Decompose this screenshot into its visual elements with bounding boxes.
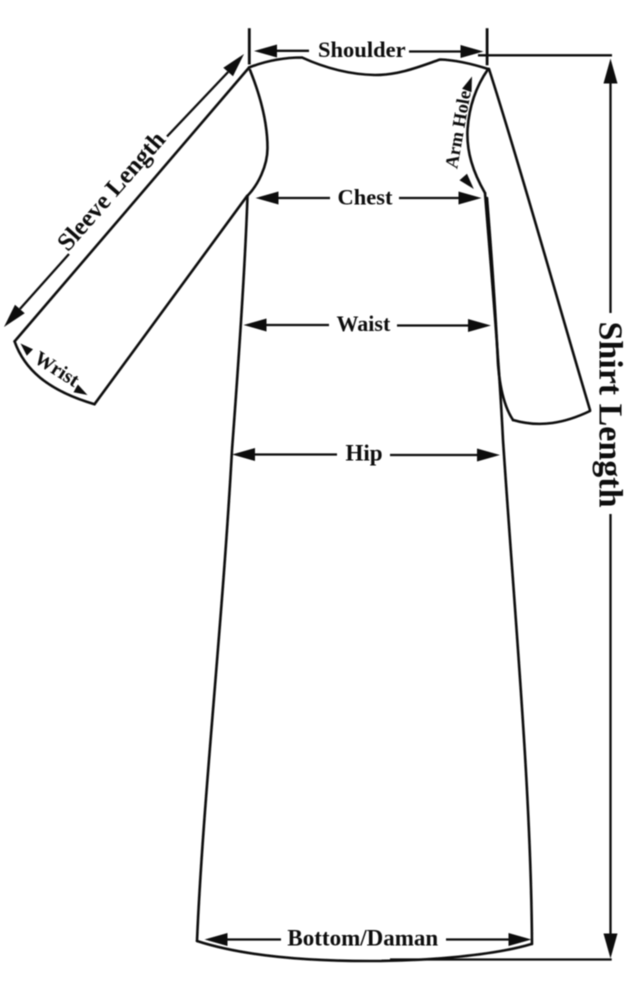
- svg-text:Bottom/Daman: Bottom/Daman: [287, 926, 438, 951]
- svg-text:Shoulder: Shoulder: [318, 37, 406, 62]
- svg-text:Waist: Waist: [337, 311, 391, 336]
- svg-text:Chest: Chest: [338, 184, 394, 209]
- svg-text:Shirt Length: Shirt Length: [592, 321, 629, 507]
- svg-text:Hip: Hip: [345, 441, 382, 466]
